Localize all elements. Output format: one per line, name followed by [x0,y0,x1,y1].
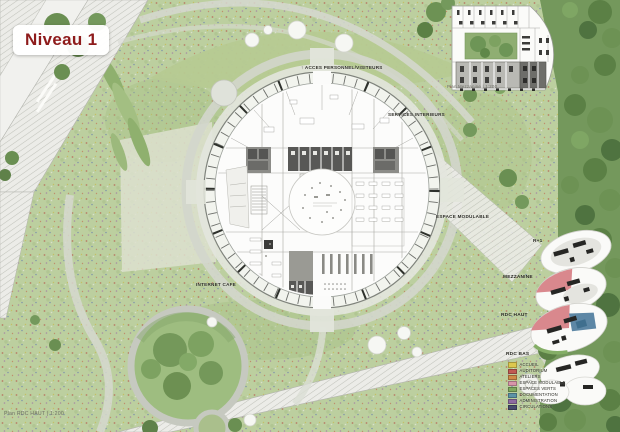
legend-item: ACCUEIL [508,363,598,367]
legend-swatch [508,399,517,405]
mezzanine-caption: Plan Mezzanine | 1:200 [447,84,497,89]
legend-swatch [508,375,517,381]
level-label-rdc-haut: RDC HAUT [501,313,528,318]
label-internet-cafe: INTERNET CAFE [196,282,236,287]
legend-swatch [508,381,517,387]
mezzanine-plan [452,6,554,91]
legend: ACCUEIL AUDITORIUM ATELIERS ESPACE MODUL… [508,363,598,411]
legend-swatch [508,393,517,399]
label-services: SERVICES INTERIEURS [388,112,445,117]
level-label-rdc-bas: RDC BAS [506,352,529,357]
legend-swatch [508,387,517,393]
level-label-r1: R+1 [533,239,543,244]
page-title: Niveau 1 [13,25,109,55]
main-caption: Plan RDC HAUT | 1:200 [4,411,64,417]
presentation-board: Niveau 1 ↑ ACCES PERSONNEL/VISITEURS SER… [0,0,620,432]
legend-swatch [508,405,517,411]
label-espace-modulable: ESPACE MODULABLE [436,214,489,219]
legend-swatch [508,362,517,368]
level-label-mezzanine: MEZZANINE [503,275,533,280]
legend-swatch [508,369,517,375]
label-access: ↑ ACCES PERSONNEL/VISITEURS [301,65,383,70]
up-arrow-icon: ↑ [301,65,304,70]
legend-item: CIRCULATIONS [508,405,598,409]
